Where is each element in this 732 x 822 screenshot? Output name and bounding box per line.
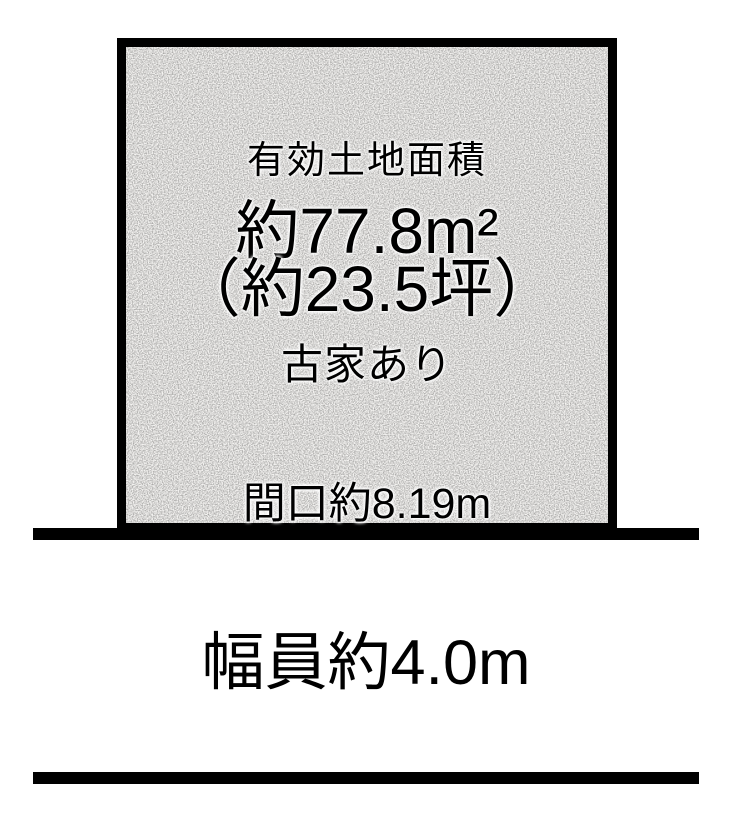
- land-plot-outline: 有効土地面積 約77.8m² （約23.5坪） 古家あり 間口約8.19m: [117, 38, 617, 532]
- land-site-plan: 有効土地面積 約77.8m² （約23.5坪） 古家あり 間口約8.19m 幅員…: [0, 0, 732, 822]
- road-edge-line-far: [33, 772, 699, 784]
- road-edge-line-near: [33, 528, 699, 540]
- road-width-label: 幅員約4.0m: [0, 632, 732, 695]
- effective-land-area-title: 有効土地面積: [126, 142, 608, 180]
- land-area-tsubo: （約23.5坪）: [126, 257, 608, 321]
- old-house-note: 古家あり: [126, 344, 608, 386]
- frontage-dimension-label: 間口約8.19m: [126, 483, 608, 526]
